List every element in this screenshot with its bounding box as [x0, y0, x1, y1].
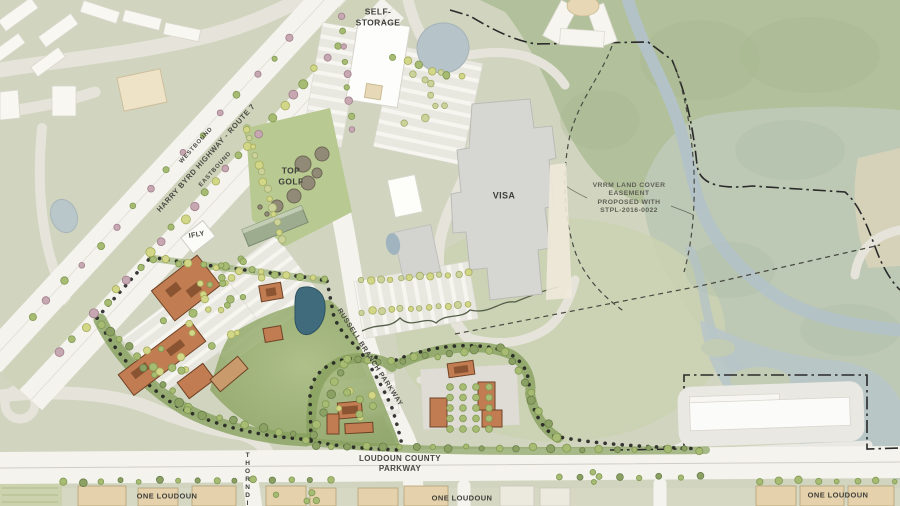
tree [415, 61, 423, 69]
tree [486, 415, 493, 422]
tree [535, 408, 542, 415]
tree [834, 479, 839, 484]
tree [344, 70, 351, 77]
tree [349, 127, 355, 133]
tree [614, 447, 620, 453]
tree [289, 477, 295, 483]
tree [269, 114, 277, 122]
tree [177, 353, 185, 361]
tree [180, 149, 186, 155]
tree [200, 133, 205, 138]
tree [358, 277, 363, 282]
tree [98, 479, 104, 485]
tree [259, 424, 268, 433]
tree [328, 444, 334, 450]
tree [428, 80, 435, 87]
tree [460, 426, 467, 433]
tree [271, 212, 276, 217]
tree [872, 477, 878, 483]
tree [227, 331, 235, 339]
tree [212, 178, 219, 185]
tree [273, 492, 278, 497]
tree [251, 144, 256, 149]
tree [443, 72, 450, 79]
tree [473, 415, 480, 422]
tree [224, 302, 230, 308]
tree [228, 274, 235, 281]
tree [42, 297, 50, 305]
tree [656, 473, 662, 479]
tree [397, 305, 403, 311]
tree [428, 68, 436, 76]
tree [170, 388, 176, 394]
tree [379, 308, 386, 315]
tree [410, 71, 417, 78]
tree [201, 262, 207, 268]
tree [335, 43, 341, 49]
tree [529, 443, 537, 451]
tree [176, 261, 182, 267]
tree [470, 345, 479, 354]
tree [590, 469, 596, 475]
tree [344, 355, 352, 363]
tree [328, 476, 335, 483]
tree [547, 445, 555, 453]
tree [447, 394, 454, 401]
tree [509, 358, 516, 365]
tree [337, 370, 344, 377]
tree [473, 405, 480, 412]
tree [375, 359, 381, 365]
tree [327, 390, 336, 399]
tree [230, 416, 238, 424]
forest-mottle [560, 90, 640, 150]
tree [138, 264, 144, 270]
tree [338, 13, 345, 20]
tree [442, 103, 448, 109]
tree [258, 274, 265, 281]
tree [369, 392, 376, 399]
tree [447, 405, 454, 412]
tree [356, 396, 363, 403]
tree [486, 405, 493, 412]
tree [486, 394, 493, 401]
tree [289, 90, 298, 99]
tree [219, 263, 224, 268]
tree [348, 113, 354, 119]
tree [892, 479, 897, 484]
tree [240, 294, 245, 299]
tree [454, 301, 461, 308]
tree [258, 168, 265, 175]
tree [580, 447, 585, 452]
tree [150, 256, 157, 263]
tree [501, 348, 509, 356]
tree [646, 445, 651, 450]
tree [82, 324, 90, 332]
tree [89, 309, 98, 318]
tree [445, 273, 450, 278]
tree [61, 277, 69, 285]
tree [344, 389, 351, 396]
tree [757, 479, 763, 485]
tree [479, 446, 484, 451]
tree [255, 130, 263, 138]
tree [191, 202, 199, 210]
wetland-mottle [735, 120, 845, 180]
tree [664, 445, 672, 453]
tree [233, 91, 240, 98]
tree [309, 490, 315, 496]
tree [636, 475, 641, 480]
tree [160, 318, 166, 324]
tree [214, 478, 220, 484]
tree [521, 379, 528, 386]
tree [252, 153, 258, 159]
thorndike-street-road [251, 484, 254, 506]
tree [286, 34, 293, 41]
tree [322, 401, 329, 408]
tree [197, 281, 203, 287]
tree [342, 59, 347, 64]
tree [446, 350, 452, 356]
tree [464, 444, 469, 449]
tree [105, 299, 112, 306]
tree [235, 152, 242, 159]
tree [404, 57, 412, 65]
tree [486, 426, 493, 433]
tree [460, 384, 467, 391]
tree [697, 472, 704, 479]
tree [596, 474, 602, 480]
tree [344, 85, 349, 90]
tree [217, 415, 223, 421]
tree [79, 479, 87, 487]
tree [168, 364, 176, 372]
tree [322, 276, 328, 282]
tree [422, 77, 428, 83]
tree [307, 477, 312, 482]
tree [267, 196, 273, 202]
tree [176, 478, 181, 483]
forest-mottle [740, 17, 880, 93]
tree [247, 135, 252, 140]
tree [189, 309, 197, 317]
tree [696, 448, 703, 455]
tree [399, 276, 404, 281]
tree [98, 321, 106, 329]
tree [387, 277, 392, 282]
tree [213, 265, 219, 271]
tree [413, 443, 420, 450]
tree [320, 409, 328, 417]
tree [422, 352, 428, 358]
tree [397, 444, 402, 449]
tree [426, 305, 432, 311]
tree [344, 444, 351, 451]
tree [428, 92, 434, 98]
tree [184, 407, 191, 414]
tree [345, 97, 353, 105]
tree [364, 357, 371, 364]
tree [178, 367, 185, 374]
tree [168, 224, 174, 230]
tree [160, 382, 166, 388]
tree [473, 394, 480, 401]
tree [158, 346, 164, 352]
site-plan-map[interactable]: SELF-STORAGE TOP GOLF VISA IFLY VRRM LAN… [0, 0, 900, 506]
tree [241, 421, 249, 429]
tree [29, 314, 36, 321]
tree [406, 274, 412, 280]
tree [136, 479, 141, 484]
tree [290, 431, 296, 437]
tree [271, 271, 278, 278]
tree [465, 302, 471, 308]
tree [208, 343, 215, 350]
tree [369, 307, 377, 315]
tree [283, 272, 290, 279]
tree [264, 185, 271, 192]
tree [146, 248, 155, 257]
tree [311, 65, 318, 72]
tree [617, 474, 624, 481]
tree [444, 445, 452, 453]
tree [140, 364, 147, 371]
tree [445, 303, 451, 309]
tree [336, 406, 342, 412]
tree [249, 266, 255, 272]
tree [553, 433, 561, 441]
tree [775, 477, 782, 484]
tree [274, 219, 281, 226]
tree [447, 415, 454, 422]
tree [416, 306, 422, 312]
tree [144, 347, 151, 354]
long-white-building [690, 397, 851, 431]
tree [186, 320, 193, 327]
tree [473, 384, 480, 391]
tree [486, 347, 493, 354]
tree [682, 446, 687, 451]
tree [473, 426, 480, 433]
tree [259, 178, 267, 186]
tree [528, 389, 535, 396]
tree [68, 336, 75, 343]
tree [459, 73, 465, 79]
tree [389, 54, 395, 60]
tree [268, 204, 276, 212]
tree [378, 276, 385, 283]
tree [545, 420, 553, 428]
tree [235, 268, 242, 275]
tree [205, 307, 211, 313]
tree [595, 445, 603, 453]
tree [162, 255, 169, 262]
tree [435, 354, 441, 360]
tree [299, 80, 308, 89]
tree [363, 442, 370, 449]
tree [219, 274, 226, 281]
tree [175, 398, 184, 407]
tree [79, 262, 85, 268]
tree [456, 271, 462, 277]
tree [401, 120, 408, 127]
tree [486, 384, 493, 391]
tree [461, 348, 469, 356]
tree [240, 258, 247, 265]
tree [195, 478, 200, 483]
tree [302, 437, 309, 444]
tree [310, 275, 315, 280]
tree [272, 56, 277, 61]
southeast-parcel [677, 381, 865, 447]
tree [276, 229, 282, 235]
tree [258, 269, 264, 275]
tree [304, 498, 310, 504]
tree [278, 236, 286, 244]
tree [556, 474, 562, 480]
tree [122, 276, 130, 284]
tree [157, 238, 165, 246]
tree [389, 306, 395, 312]
tree [330, 378, 338, 386]
tree [281, 101, 290, 110]
tree [149, 363, 157, 371]
tree [400, 358, 406, 364]
tan-roof [567, 0, 599, 16]
tree [515, 367, 522, 374]
tree [632, 447, 637, 452]
tree [184, 259, 192, 267]
tree [340, 28, 346, 34]
tree [163, 167, 169, 173]
tree [795, 476, 802, 483]
tree [126, 343, 134, 351]
tree [496, 445, 503, 452]
tree [118, 478, 123, 483]
tree [275, 429, 282, 436]
tree [207, 282, 213, 288]
tree [313, 497, 320, 504]
tree [359, 310, 364, 315]
tree [591, 479, 596, 484]
tree [106, 327, 115, 336]
tree [367, 277, 375, 285]
tree [513, 446, 520, 453]
tree [460, 394, 467, 401]
tree [430, 444, 435, 449]
tree [198, 411, 207, 420]
tree [134, 353, 141, 360]
tree [460, 415, 467, 422]
tree [436, 272, 441, 277]
tree [460, 405, 467, 412]
tree [433, 103, 438, 108]
tree [312, 442, 320, 450]
tree [269, 477, 275, 483]
tree [98, 243, 105, 250]
tree [563, 444, 571, 452]
tree [447, 384, 454, 391]
tree [356, 411, 363, 418]
tree [60, 478, 67, 485]
tree [222, 165, 229, 172]
tree [816, 478, 822, 484]
tree [148, 185, 155, 192]
tree [218, 307, 224, 313]
tree [181, 215, 190, 224]
tree [232, 478, 237, 483]
tree [388, 357, 395, 364]
tree [130, 203, 136, 209]
tree [189, 330, 195, 336]
tree [55, 348, 64, 357]
tree [201, 189, 208, 196]
tree [201, 295, 208, 302]
tree [427, 273, 434, 280]
map-graphics [0, 0, 900, 506]
tree [436, 304, 441, 309]
tree [465, 269, 472, 276]
tree [255, 71, 261, 77]
tree [408, 306, 413, 311]
island [701, 339, 735, 357]
tree [855, 478, 861, 484]
tree [369, 402, 376, 409]
tree [116, 336, 122, 342]
tree [447, 426, 454, 433]
tree [355, 356, 362, 363]
tree [341, 44, 346, 49]
tree [310, 431, 317, 438]
tree [678, 475, 683, 480]
tree [250, 476, 257, 483]
tree [324, 54, 331, 61]
tree [416, 272, 423, 279]
tree [112, 286, 119, 293]
tree [156, 476, 163, 483]
tree [217, 110, 223, 116]
tree [577, 474, 583, 480]
tree [114, 224, 120, 230]
tree [527, 396, 535, 404]
tree [421, 114, 429, 122]
tree [243, 126, 249, 132]
tree [312, 420, 320, 428]
tree [379, 443, 387, 451]
tree [410, 353, 418, 361]
tree [296, 273, 303, 280]
